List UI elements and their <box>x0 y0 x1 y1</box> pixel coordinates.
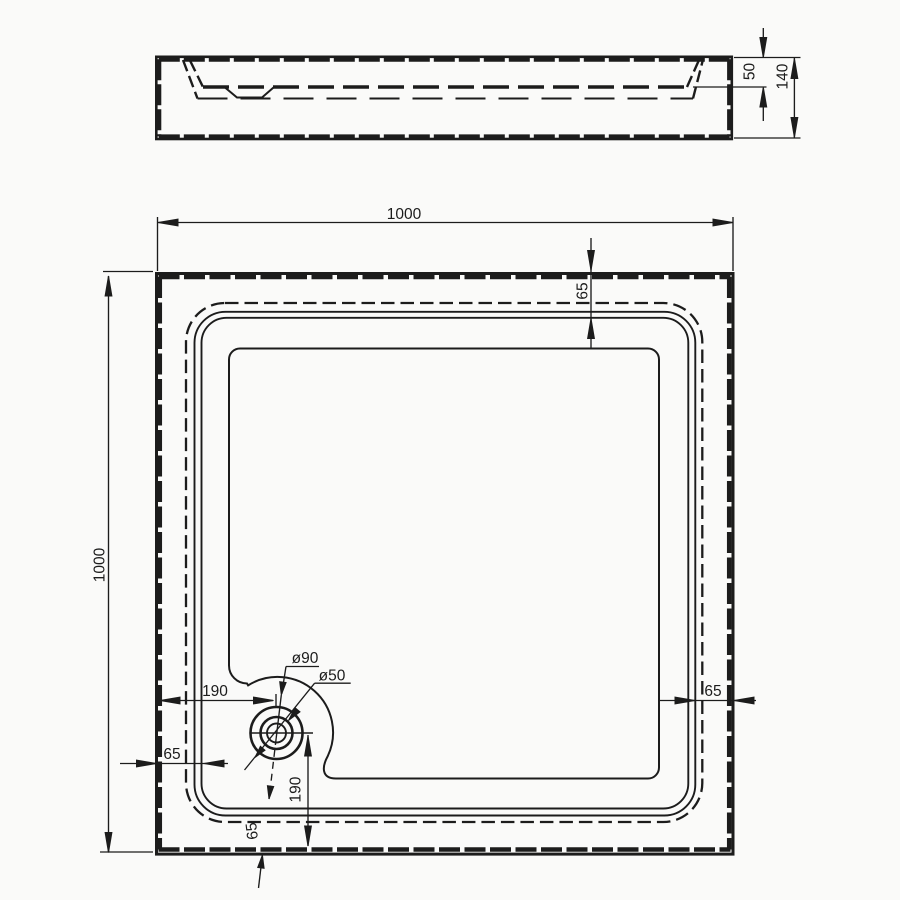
svg-text:65: 65 <box>163 746 180 763</box>
svg-text:65: 65 <box>243 821 262 840</box>
svg-text:190: 190 <box>288 776 305 802</box>
svg-text:65: 65 <box>575 282 592 299</box>
svg-text:190: 190 <box>202 683 228 700</box>
svg-text:50: 50 <box>742 63 759 81</box>
svg-text:1000: 1000 <box>387 206 422 223</box>
svg-text:ø50: ø50 <box>319 668 346 685</box>
svg-text:1000: 1000 <box>92 547 109 582</box>
svg-text:65: 65 <box>704 683 721 700</box>
svg-text:ø90: ø90 <box>292 650 319 667</box>
svg-text:140: 140 <box>775 63 792 89</box>
